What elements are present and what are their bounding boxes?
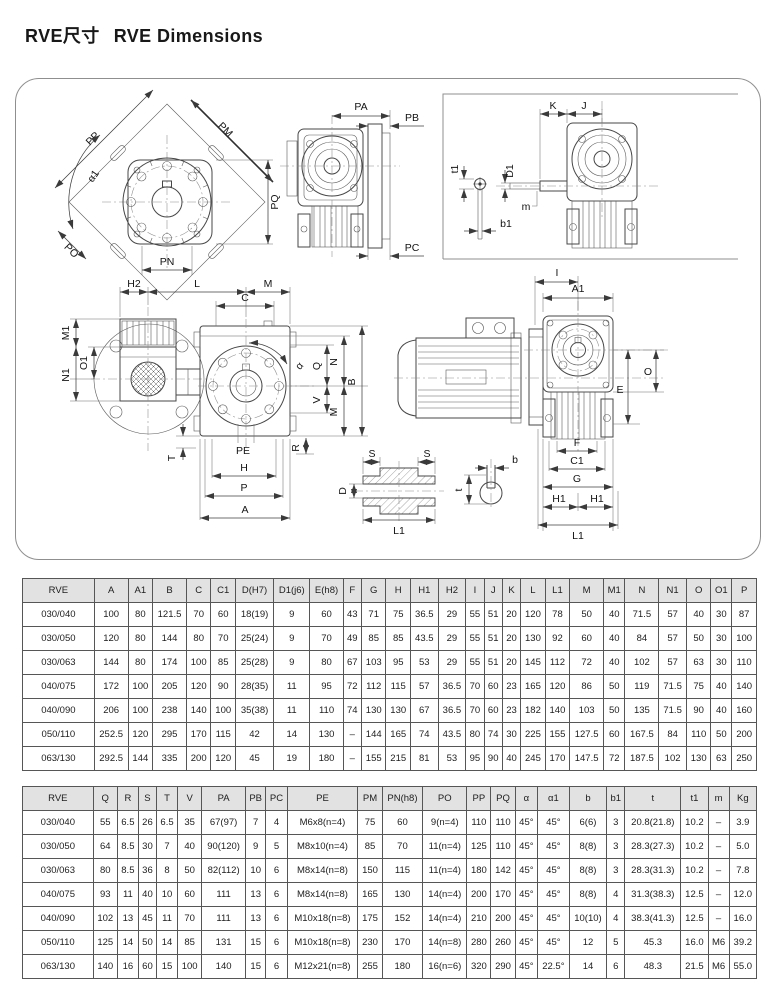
table-cell: 9 [274, 627, 310, 651]
table-cell: 125 [467, 835, 491, 859]
dim-label-i: I [556, 267, 559, 279]
table-cell: 50 [686, 627, 711, 651]
column-header: b [569, 787, 607, 811]
column-header: RVE [23, 579, 95, 603]
dim-label-o: O [644, 366, 652, 378]
row-model: 050/110 [23, 723, 95, 747]
table-cell: 9 [274, 603, 310, 627]
table-cell: 90 [211, 675, 236, 699]
dim-label-v: V [311, 396, 323, 403]
column-header: C1 [211, 579, 236, 603]
dim-label-t-key: t [453, 488, 465, 491]
table-cell: 100 [211, 699, 236, 723]
dim-label-t1: t1 [449, 164, 461, 173]
table-cell: 100 [94, 603, 128, 627]
table-cell: 165 [358, 883, 382, 907]
table-cell: 15 [245, 955, 265, 979]
table-cell: 8.5 [117, 835, 138, 859]
table-cell: 50 [604, 675, 625, 699]
table-row: 040/0759311401060111136M8x14(n=8)1651301… [23, 883, 757, 907]
column-header: N [625, 579, 659, 603]
table-cell: 12.0 [729, 883, 756, 907]
column-header: PQ [491, 787, 515, 811]
table-cell: 60 [178, 883, 202, 907]
table-cell: M6 [708, 955, 729, 979]
table-cell: 45° [538, 883, 570, 907]
table-cell: 45° [515, 955, 537, 979]
table-cell: 210 [467, 907, 491, 931]
table-cell: 85 [361, 627, 386, 651]
table-cell: 60 [484, 675, 502, 699]
table-cell: 140 [732, 675, 757, 699]
table-cell: 6 [266, 859, 287, 883]
table-cell: 72 [604, 747, 625, 771]
table-cell: 51 [484, 627, 502, 651]
column-header: N1 [659, 579, 687, 603]
table-cell: 12.5 [681, 883, 708, 907]
table-cell: 5 [266, 835, 287, 859]
column-header: P [732, 579, 757, 603]
dim-label-pc: PC [405, 242, 420, 254]
table-cell: 71.5 [625, 603, 659, 627]
column-header: G [361, 579, 386, 603]
table-cell: 71 [361, 603, 386, 627]
table-cell: 130 [382, 883, 423, 907]
dim-label-a: A [241, 504, 248, 516]
table-row: 063/130140166015100140156M12x21(n=8)2551… [23, 955, 757, 979]
table-cell: 45° [515, 883, 537, 907]
table-cell: 39.2 [729, 931, 756, 955]
column-header: Kg [729, 787, 756, 811]
table-cell: 11 [274, 675, 310, 699]
column-header: I [466, 579, 484, 603]
table-cell: 67(97) [202, 811, 246, 835]
table-cell: 15 [245, 931, 265, 955]
table-cell: 70 [382, 835, 423, 859]
table-cell: 120 [211, 747, 236, 771]
table-cell: 22.5° [538, 955, 570, 979]
column-header: PP [467, 787, 491, 811]
table-cell: 50 [178, 859, 202, 883]
table-cell: 70 [466, 675, 484, 699]
table-cell: 20 [502, 627, 520, 651]
column-header: t [625, 787, 681, 811]
table-cell: 238 [153, 699, 187, 723]
table-cell: 40 [711, 675, 732, 699]
table-cell: 57 [659, 603, 687, 627]
table-cell: 103 [570, 699, 604, 723]
table-cell: 60 [570, 627, 604, 651]
table-cell: 84 [625, 627, 659, 651]
table-row: 040/0751721002051209028(35)1195721121155… [23, 675, 757, 699]
table-cell: – [343, 723, 361, 747]
table-cell: 200 [732, 723, 757, 747]
table-cell: 320 [467, 955, 491, 979]
table-cell: 29 [438, 603, 466, 627]
table-row: 030/05012080144807025(24)97049858543.529… [23, 627, 757, 651]
table-cell: 45° [538, 859, 570, 883]
table-cell: 3 [607, 835, 625, 859]
table-cell: 110 [686, 723, 711, 747]
table-cell: 75 [386, 603, 411, 627]
table-cell: 60 [382, 811, 423, 835]
table-cell: 102 [659, 747, 687, 771]
column-header: E(h8) [310, 579, 343, 603]
table-cell: 70 [211, 627, 236, 651]
table-cell: 182 [521, 699, 546, 723]
table-cell: 45° [515, 907, 537, 931]
table-cell: 10.2 [681, 811, 708, 835]
table-cell: 20 [502, 603, 520, 627]
table-cell: 100 [128, 675, 153, 699]
table-cell: 45° [515, 931, 537, 955]
table-cell: 30 [711, 651, 732, 675]
table-cell: 85 [211, 651, 236, 675]
table-cell: 102 [625, 651, 659, 675]
table-cell: M6 [708, 931, 729, 955]
table-row: 030/040556.5266.53567(97)74M6x8(n=4)7560… [23, 811, 757, 835]
table-cell: 16.0 [681, 931, 708, 955]
table-cell: 4 [266, 811, 287, 835]
table-cell: 144 [153, 627, 187, 651]
table-cell: 78 [545, 603, 570, 627]
table-cell: 21.5 [681, 955, 708, 979]
table-cell: – [708, 835, 729, 859]
table-cell: 152 [382, 907, 423, 931]
table-cell: 45° [515, 859, 537, 883]
table-cell: 9 [245, 835, 265, 859]
table-cell: 93 [93, 883, 117, 907]
table-cell: M10x18(n=8) [287, 931, 358, 955]
dim-label-o1: O1 [78, 356, 90, 370]
column-header: M1 [604, 579, 625, 603]
row-model: 063/130 [23, 955, 94, 979]
row-model: 040/090 [23, 699, 95, 723]
table-cell: 45.3 [625, 931, 681, 955]
column-header: V [178, 787, 202, 811]
dim-label-t-cap: T [166, 454, 178, 461]
table-cell: 11(n=4) [423, 835, 467, 859]
table-cell: 20 [502, 651, 520, 675]
table-cell: 90 [484, 747, 502, 771]
column-header: F [343, 579, 361, 603]
table-cell: 5 [607, 931, 625, 955]
table-cell: 8(8) [569, 859, 607, 883]
table-cell: 28.3(27.3) [625, 835, 681, 859]
header-row: RVEAA1BCC1D(H7)D1(j6)E(h8)FGHH1H2IJKLL1M… [23, 579, 757, 603]
table-cell: 170 [382, 931, 423, 955]
table-cell: 16 [117, 955, 138, 979]
table-cell: 70 [186, 603, 211, 627]
table-cell: 40 [604, 627, 625, 651]
table-cell: 36.5 [438, 675, 466, 699]
table-cell: 13 [245, 883, 265, 907]
table-cell: 172 [94, 675, 128, 699]
table-cell: 51 [484, 603, 502, 627]
table-cell: 45° [538, 811, 570, 835]
column-header: PN(h8) [382, 787, 423, 811]
table-cell: 145 [521, 651, 546, 675]
table-cell: 4 [607, 907, 625, 931]
table-cell: 200 [467, 883, 491, 907]
table-cell: 130 [310, 723, 343, 747]
table-cell: 11 [156, 907, 177, 931]
table-cell: 3 [607, 859, 625, 883]
table-cell: 50 [138, 931, 156, 955]
table-cell: 50 [604, 699, 625, 723]
table-cell: 10.2 [681, 835, 708, 859]
table-cell: 28.3(31.3) [625, 859, 681, 883]
table-cell: 7 [245, 811, 265, 835]
table-cell: 30 [711, 627, 732, 651]
table-cell: 170 [491, 883, 515, 907]
table-cell: 75 [686, 675, 711, 699]
dim-label-h1-right: H1 [590, 493, 604, 505]
table-cell: 130 [521, 627, 546, 651]
table-cell: 55.0 [729, 955, 756, 979]
table-cell: 50 [570, 603, 604, 627]
column-header: PE [287, 787, 358, 811]
column-header: S [138, 787, 156, 811]
table-cell: 14 [117, 931, 138, 955]
table-cell: 31.3(38.3) [625, 883, 681, 907]
table-cell: 100 [178, 955, 202, 979]
column-header: C [186, 579, 211, 603]
view-main-side: α PE H2 L M C M1 O1 [60, 278, 368, 520]
column-header: t1 [681, 787, 708, 811]
dim-label-j: J [581, 100, 586, 112]
table-cell: 120 [521, 603, 546, 627]
table-cell: 112 [361, 675, 386, 699]
column-header: PO [423, 787, 467, 811]
table-cell: 174 [153, 651, 187, 675]
table-cell: 60 [138, 955, 156, 979]
column-header: PA [202, 787, 246, 811]
table-cell: 95 [466, 747, 484, 771]
table-cell: 80 [128, 651, 153, 675]
dim-label-d1: D1 [504, 164, 516, 178]
table-cell: 38.3(41.3) [625, 907, 681, 931]
table-cell: 8.5 [117, 859, 138, 883]
table-cell: 40 [711, 699, 732, 723]
table-cell: 85 [386, 627, 411, 651]
column-header: RVE [23, 787, 94, 811]
row-model: 063/130 [23, 747, 95, 771]
table-cell: 20.8(21.8) [625, 811, 681, 835]
table-cell: 103 [361, 651, 386, 675]
dim-label-g: G [573, 473, 581, 485]
row-model: 040/075 [23, 675, 95, 699]
dim-label-c: C [241, 292, 249, 304]
dim-label-s-left: S [368, 448, 375, 460]
table-cell: 13 [117, 907, 138, 931]
view-gearbox-flange-side: PA PB PC [280, 101, 424, 260]
table-cell: 14 [569, 955, 607, 979]
table-cell: 215 [386, 747, 411, 771]
table-cell: 142 [491, 859, 515, 883]
table-cell: 100 [732, 627, 757, 651]
column-header: L1 [545, 579, 570, 603]
table-cell: 43 [343, 603, 361, 627]
table-cell: 6.5 [156, 811, 177, 835]
table-cell: 250 [732, 747, 757, 771]
table-cell: 16(n=6) [423, 955, 467, 979]
view-keyway-detail: b t [453, 454, 518, 509]
table-cell: 18(19) [235, 603, 273, 627]
dim-label-alpha: α [293, 360, 306, 372]
dim-label-h: H [240, 462, 248, 474]
table-cell: 165 [521, 675, 546, 699]
table-cell: 48.3 [625, 955, 681, 979]
table-cell: 127.5 [570, 723, 604, 747]
table-cell: 11(n=4) [423, 859, 467, 883]
table-cell: 42 [235, 723, 273, 747]
table-cell: 90 [686, 699, 711, 723]
table-cell: 121.5 [153, 603, 187, 627]
table-cell: 131 [202, 931, 246, 955]
table-cell: 35(38) [235, 699, 273, 723]
table-cell: 71.5 [659, 675, 687, 699]
table-cell: 292.5 [94, 747, 128, 771]
table-cell: 12 [569, 931, 607, 955]
table-cell: 130 [686, 747, 711, 771]
row-model: 030/050 [23, 627, 95, 651]
table-cell: 30 [138, 835, 156, 859]
table-cell: 80 [128, 627, 153, 651]
dimensions-table-secondary: RVEQRSTVPAPBPCPEPMPN(h8)POPPPQαα1bb1tt1m… [22, 786, 757, 979]
page-title: RVE尺寸RVE Dimensions [25, 22, 263, 48]
table-cell: 80 [128, 603, 153, 627]
table-cell: 45 [235, 747, 273, 771]
table-cell: 155 [361, 747, 386, 771]
table-cell: 15 [156, 955, 177, 979]
table-cell: 53 [410, 651, 438, 675]
table-cell: 74 [343, 699, 361, 723]
table-cell: 40 [686, 603, 711, 627]
table-cell: 26 [138, 811, 156, 835]
column-header: H1 [410, 579, 438, 603]
dim-label-h2: H2 [127, 278, 141, 290]
table-cell: 200 [186, 747, 211, 771]
table-cell: 111 [202, 883, 246, 907]
dim-label-m-side: M [328, 408, 340, 417]
dim-label-h1-left: H1 [552, 493, 566, 505]
header-row: RVEQRSTVPAPBPCPEPMPN(h8)POPPPQαα1bb1tt1m… [23, 787, 757, 811]
table-cell: 36 [138, 859, 156, 883]
table-cell: 100 [128, 699, 153, 723]
table-cell: – [708, 811, 729, 835]
table-cell: 125 [93, 931, 117, 955]
table-cell: 3.9 [729, 811, 756, 835]
table-cell: 110 [732, 651, 757, 675]
column-header: Q [93, 787, 117, 811]
table-cell: 115 [211, 723, 236, 747]
table-cell: 55 [466, 603, 484, 627]
column-header: PB [245, 787, 265, 811]
column-header: α1 [538, 787, 570, 811]
dim-label-q: Q [311, 362, 323, 370]
table-cell: 63 [686, 651, 711, 675]
dim-label-k: K [549, 100, 556, 112]
table-cell: – [708, 907, 729, 931]
table-cell: 187.5 [625, 747, 659, 771]
dim-label-m-small: m [522, 201, 531, 213]
dim-label-pn: PN [160, 256, 175, 268]
table-cell: 110 [310, 699, 343, 723]
table-cell: 110 [467, 811, 491, 835]
table-cell: 51 [484, 651, 502, 675]
table-cell: 84 [659, 723, 687, 747]
table-cell: 80 [310, 651, 343, 675]
table-cell: 144 [361, 723, 386, 747]
table-cell: 95 [310, 675, 343, 699]
table-cell: 36.5 [410, 603, 438, 627]
column-header: T [156, 787, 177, 811]
table-cell: 160 [732, 699, 757, 723]
page-title-en: RVE Dimensions [114, 26, 263, 46]
table-cell: 6 [266, 931, 287, 955]
table-cell: 72 [570, 651, 604, 675]
table-cell: 10.2 [681, 859, 708, 883]
dim-label-po: PO [62, 241, 81, 260]
table-row: 030/04010080121.5706018(19)96043717536.5… [23, 603, 757, 627]
table-cell: 95 [386, 651, 411, 675]
table-cell: M10x18(n=8) [287, 907, 358, 931]
table-cell: 10 [245, 859, 265, 883]
table-cell: 80 [186, 627, 211, 651]
column-header: L [521, 579, 546, 603]
table-cell: 140 [93, 955, 117, 979]
dim-label-pp: PP [84, 130, 102, 148]
table-cell: 30 [502, 723, 520, 747]
table-cell: 14(n=4) [423, 907, 467, 931]
table-cell: 115 [382, 859, 423, 883]
table-cell: 40 [178, 835, 202, 859]
table-cell: 150 [358, 859, 382, 883]
table-cell: 85 [178, 931, 202, 955]
column-header: M [570, 579, 604, 603]
table-cell: 206 [94, 699, 128, 723]
view-hollow-shaft: S S D L1 [337, 448, 444, 537]
table-cell: 6(6) [569, 811, 607, 835]
table-cell: 49 [343, 627, 361, 651]
table-cell: 10 [156, 883, 177, 907]
table-cell: M6x8(n=4) [287, 811, 358, 835]
table-cell: 115 [386, 675, 411, 699]
dim-label-f: F [574, 437, 580, 449]
table-cell: 119 [625, 675, 659, 699]
table-cell: 280 [467, 931, 491, 955]
row-model: 030/040 [23, 603, 95, 627]
table-cell: 6 [607, 955, 625, 979]
table-cell: 170 [186, 723, 211, 747]
table-cell: 81 [410, 747, 438, 771]
table-cell: 14 [274, 723, 310, 747]
table-cell: 11 [117, 883, 138, 907]
table-cell: 90(120) [202, 835, 246, 859]
table-cell: 40 [138, 883, 156, 907]
table-cell: 28(35) [235, 675, 273, 699]
table-cell: 85 [358, 835, 382, 859]
document-page: RVE尺寸RVE Dimensions [0, 0, 778, 1000]
table-cell: 86 [570, 675, 604, 699]
dim-label-pe: PE [236, 445, 250, 457]
table-row: 050/110252.51202951701154214130–14416574… [23, 723, 757, 747]
table-cell: 16.0 [729, 907, 756, 931]
table-cell: 5.0 [729, 835, 756, 859]
table-cell: 3 [607, 811, 625, 835]
column-header: K [502, 579, 520, 603]
